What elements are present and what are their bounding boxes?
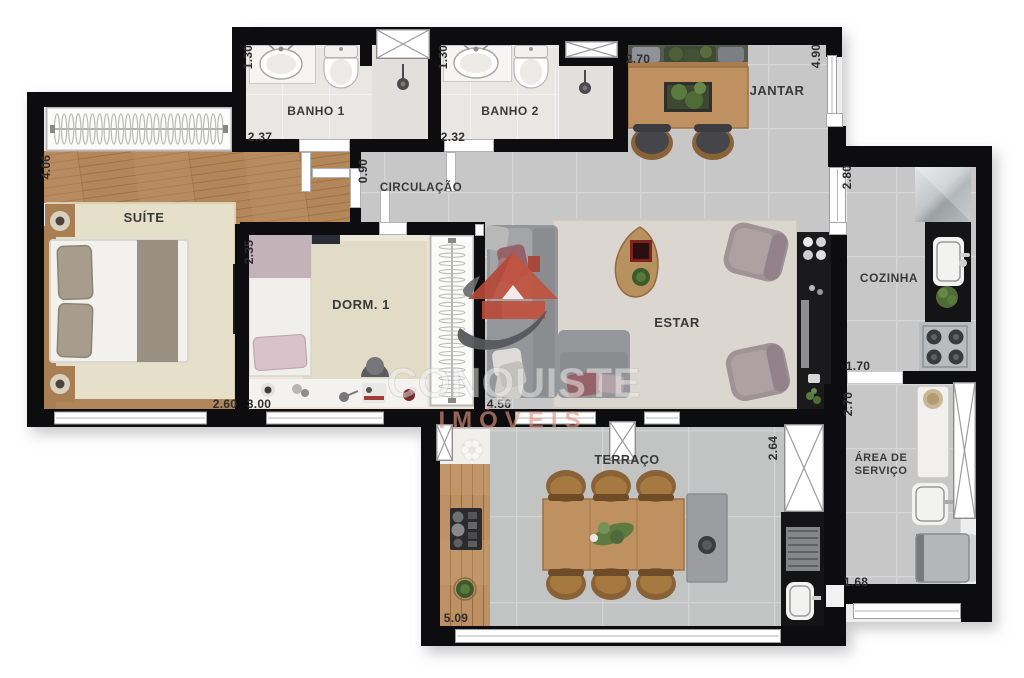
svg-text:2.60: 2.60 <box>213 397 238 411</box>
svg-text:ÁREA DE: ÁREA DE <box>855 451 908 464</box>
svg-text:4.90: 4.90 <box>809 44 823 69</box>
svg-text:SUÍTE: SUÍTE <box>124 210 165 225</box>
svg-text:2.64: 2.64 <box>766 436 780 461</box>
svg-text:1.68: 1.68 <box>844 575 869 589</box>
svg-text:5.09: 5.09 <box>444 611 469 625</box>
svg-text:CONQUISTE: CONQUISTE <box>387 359 641 406</box>
svg-text:2.32: 2.32 <box>441 130 466 144</box>
svg-text:TERRAÇO: TERRAÇO <box>594 453 659 467</box>
svg-text:2.70: 2.70 <box>626 52 651 66</box>
svg-text:BANHO 1: BANHO 1 <box>287 104 345 118</box>
svg-text:JANTAR: JANTAR <box>750 83 805 98</box>
svg-text:COZINHA: COZINHA <box>860 271 918 285</box>
svg-text:ESTAR: ESTAR <box>654 315 700 330</box>
svg-text:2.37: 2.37 <box>248 130 273 144</box>
svg-text:2.70: 2.70 <box>841 392 855 417</box>
svg-text:4.06: 4.06 <box>39 155 53 180</box>
svg-text:2.80: 2.80 <box>840 165 854 190</box>
svg-text:SERVIÇO: SERVIÇO <box>855 465 908 477</box>
svg-text:IMÓVEIS: IMÓVEIS <box>438 406 587 434</box>
svg-text:DORM. 1: DORM. 1 <box>332 297 390 312</box>
svg-text:1.30: 1.30 <box>436 45 450 70</box>
svg-text:CIRCULAÇÃO: CIRCULAÇÃO <box>380 181 462 194</box>
svg-text:2.35: 2.35 <box>242 240 256 265</box>
svg-text:1.30: 1.30 <box>241 45 255 70</box>
svg-text:BANHO 2: BANHO 2 <box>481 104 539 118</box>
svg-text:3.00: 3.00 <box>247 397 272 411</box>
svg-text:0.90: 0.90 <box>356 159 370 184</box>
svg-text:1.70: 1.70 <box>846 359 871 373</box>
